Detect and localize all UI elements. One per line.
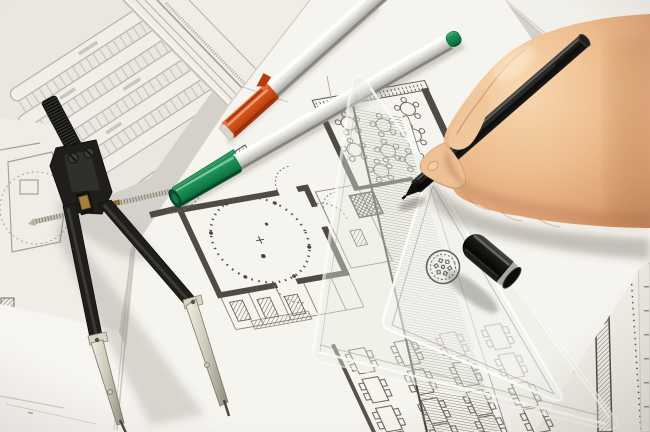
architect-scene xyxy=(0,0,650,432)
photo-stage xyxy=(0,0,650,432)
vignette xyxy=(0,0,650,432)
